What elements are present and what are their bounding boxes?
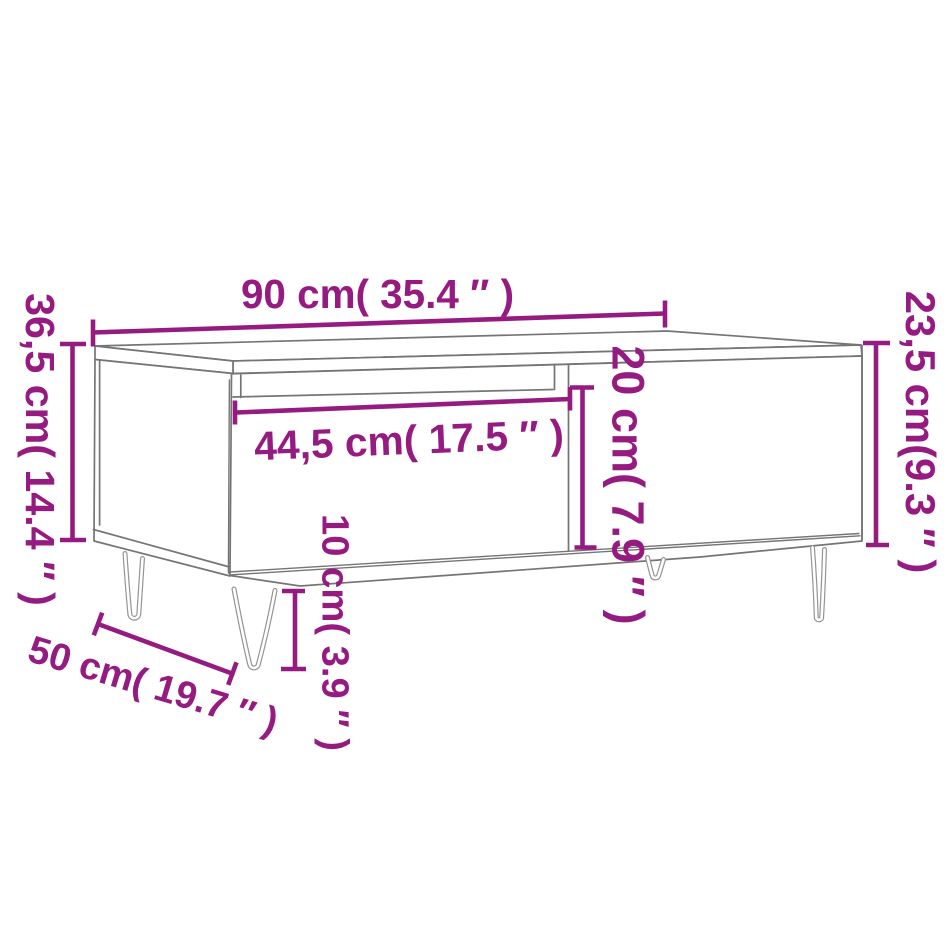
svg-text:23,5 cm(9.3 ″ ): 23,5 cm(9.3 ″ )	[897, 291, 944, 574]
svg-text:10 cm( 3.9 ″ ): 10 cm( 3.9 ″ )	[314, 514, 357, 751]
svg-text:36,5 cm( 14.4 ″ ): 36,5 cm( 14.4 ″ )	[17, 293, 63, 606]
svg-text:90 cm( 35.4 ″ ): 90 cm( 35.4 ″ )	[241, 271, 514, 317]
svg-text:20 cm( 7.9 ″ ): 20 cm( 7.9 ″ )	[603, 345, 654, 624]
